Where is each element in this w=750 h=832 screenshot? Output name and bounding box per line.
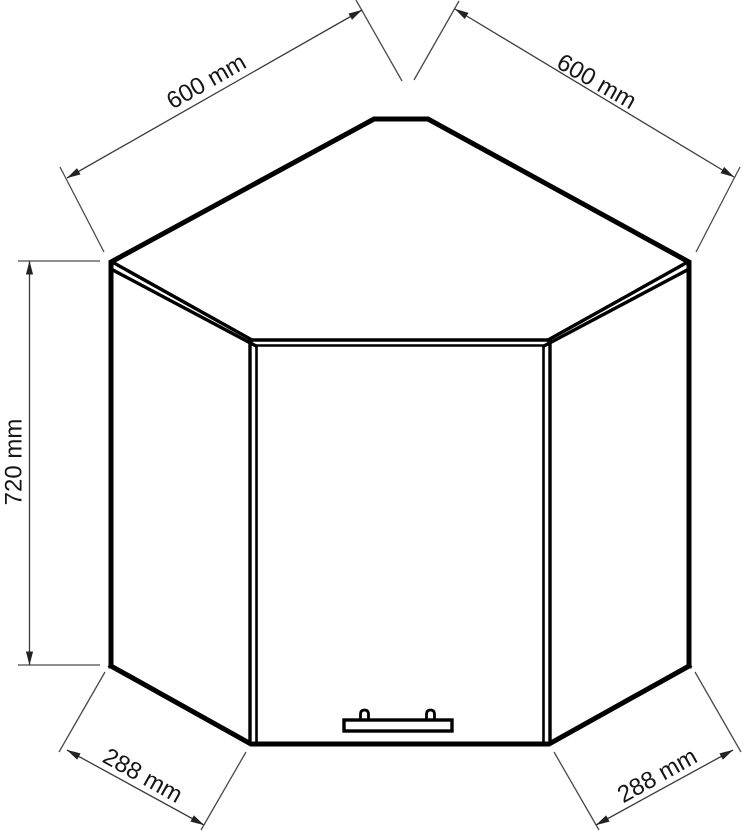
extension-line xyxy=(695,672,741,752)
extension-line xyxy=(414,1,459,80)
cabinet-technical-drawing: 600 mm 600 mm 720 mm 288 mm xyxy=(0,0,750,832)
handle-bar xyxy=(344,720,452,731)
extension-line xyxy=(696,167,740,252)
front-top-right-edge-inner xyxy=(544,269,689,346)
cabinet-front-frame xyxy=(111,263,689,742)
extension-line xyxy=(59,672,105,752)
dimension-height: 720 mm xyxy=(0,261,100,665)
extension-line xyxy=(201,752,246,830)
front-top-right-edge-outer xyxy=(548,263,686,340)
dimension-bottom-left-front: 288 mm xyxy=(59,672,246,830)
extension-line xyxy=(356,0,402,81)
drawing-canvas: 600 mm 600 mm 720 mm 288 mm xyxy=(0,0,750,832)
dimension-bottom-right-front: 288 mm xyxy=(554,672,741,830)
door-handle xyxy=(344,710,452,731)
dimension-top-right-width: 600 mm xyxy=(414,1,740,252)
extension-line xyxy=(60,167,104,252)
dimension-label: 720 mm xyxy=(0,419,27,506)
cabinet xyxy=(111,119,689,744)
extension-line xyxy=(554,752,599,830)
front-top-left-edge-inner xyxy=(111,269,256,346)
dimension-top-left-width: 600 mm xyxy=(60,0,402,252)
cabinet-carcass-outline xyxy=(111,119,689,666)
dimension-line xyxy=(67,10,362,178)
dimension-label: 600 mm xyxy=(162,49,251,115)
dimension-label: 600 mm xyxy=(552,49,641,115)
dimension-label: 288 mm xyxy=(613,743,702,809)
front-top-left-edge-outer xyxy=(114,263,252,340)
dimension-label: 288 mm xyxy=(98,743,187,809)
